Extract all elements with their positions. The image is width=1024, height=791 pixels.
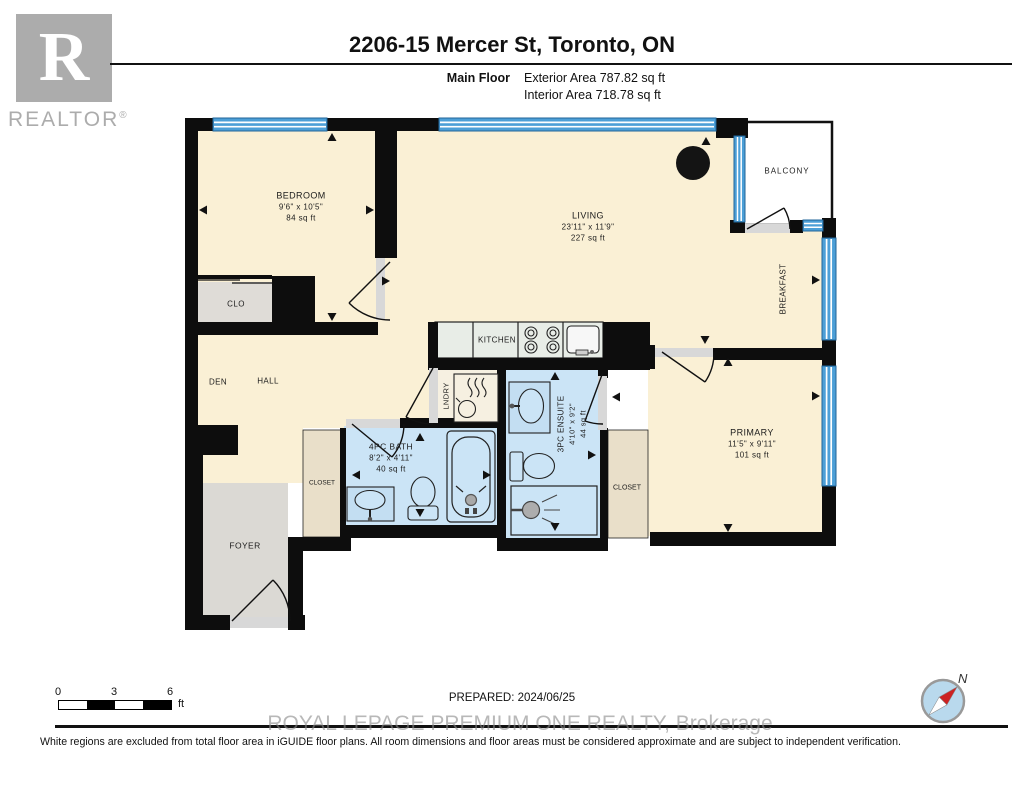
room-label-closet-hall: CLOSET (309, 478, 335, 489)
room-label-primary: PRIMARY 11'5" x 9'11" 101 sq ft (728, 428, 776, 461)
title-divider (110, 63, 1012, 65)
room-label-ensuite: 3PC ENSUITE 4'10" x 9'2" 44 sq ft (556, 396, 589, 453)
window-breakfast (822, 238, 836, 340)
structural-column (676, 146, 710, 180)
room-name: 3PC ENSUITE (556, 396, 567, 453)
ensuite-toilet-icon (510, 452, 555, 481)
room-area: 44 sq ft (578, 396, 589, 453)
room-area: 40 sq ft (369, 464, 413, 475)
kitchen-sink-icon (567, 326, 599, 355)
interior-area: Interior Area 718.78 sq ft (524, 88, 661, 102)
realtor-logo-letter: R (39, 23, 90, 93)
room-dims: 8'2" x 4'11" (369, 453, 413, 464)
realtor-brand-text: REALTOR® (8, 108, 129, 132)
floor-plan-page: R REALTOR® 2206-15 Mercer St, Toronto, O… (0, 0, 1024, 791)
exterior-area: Exterior Area 787.82 sq ft (524, 71, 665, 85)
bath-toilet-icon (408, 477, 438, 520)
scale-bar: 0 3 6 ft (58, 686, 258, 714)
compass-icon: N (915, 670, 977, 726)
scale-tick-3: 3 (111, 686, 117, 698)
room-name: PRIMARY (728, 428, 776, 439)
washer-icon (454, 374, 498, 422)
room-label-den: DEN (209, 377, 227, 388)
room-label-foyer: FOYER (229, 541, 260, 552)
scale-tick-0: 0 (55, 686, 61, 698)
window-living (439, 118, 716, 131)
scale-tick-6: 6 (167, 686, 173, 698)
floor-plan-drawing (183, 110, 839, 635)
compass-north-label: N (958, 671, 968, 686)
room-area: 84 sq ft (276, 213, 325, 224)
realtor-logo: R (16, 14, 112, 102)
room-name: 4PC BATH (369, 442, 413, 453)
floor-label: Main Floor (400, 71, 510, 85)
window-bedroom (213, 118, 327, 131)
room-dims: 9'6" x 10'5" (276, 202, 325, 213)
scale-unit: ft (178, 698, 184, 710)
scale-bar-segments (58, 700, 172, 710)
bath-sink-icon (347, 487, 394, 521)
room-name: BEDROOM (276, 191, 325, 202)
window-primary (822, 366, 836, 486)
room-label-bath: 4PC BATH 8'2" x 4'11" 40 sq ft (369, 442, 413, 475)
room-label-laundry: LNDRY (441, 382, 452, 409)
room-dims: 23'11" x 11'9" (562, 222, 615, 233)
room-label-breakfast: BREAKFAST (778, 264, 789, 315)
room-label-kitchen: KITCHEN (478, 335, 516, 346)
window-balcony-bottom (803, 220, 823, 231)
room-label-hall: HALL (257, 376, 279, 387)
disclaimer-text: White regions are excluded from total fl… (40, 736, 901, 748)
room-label-clo: CLO (227, 299, 245, 310)
brokerage-watermark: ROYAL LEPAGE PREMIUM ONE REALTY, Brokera… (267, 712, 772, 736)
room-label-living: LIVING 23'11" x 11'9" 227 sq ft (562, 211, 615, 244)
ensuite-sink-icon (509, 382, 550, 433)
page-title: 2206-15 Mercer St, Toronto, ON (349, 32, 675, 58)
window-balcony-side (734, 136, 745, 222)
room-label-closet-primary: CLOSET (613, 483, 641, 494)
prepared-date: PREPARED: 2024/06/25 (449, 692, 575, 704)
room-area: 227 sq ft (562, 233, 615, 244)
room-area: 101 sq ft (728, 450, 776, 461)
room-dims: 11'5" x 9'11" (728, 439, 776, 450)
room-label-balcony: BALCONY (764, 166, 809, 177)
room-label-bedroom: BEDROOM 9'6" x 10'5" 84 sq ft (276, 191, 325, 224)
room-name: LIVING (562, 211, 615, 222)
room-dims: 4'10" x 9'2" (567, 396, 578, 453)
